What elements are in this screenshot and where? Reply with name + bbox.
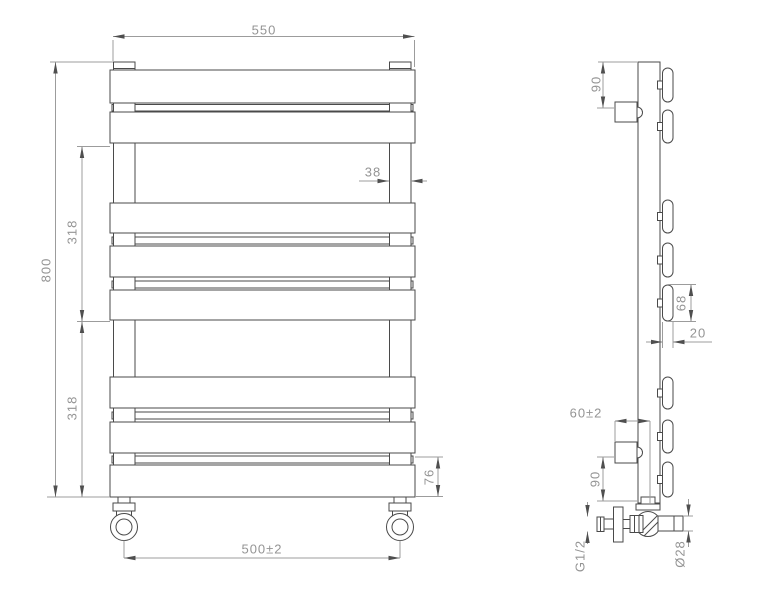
dim-overall-height: 800	[40, 258, 53, 283]
panel-edge	[663, 462, 674, 497]
dim-wall-to-pipe-centre: 60±2	[570, 407, 603, 420]
slat	[112, 237, 413, 244]
dim-valve-diameter: Ø28	[674, 540, 687, 568]
front-view	[47, 37, 443, 559]
tube-cap-right	[390, 62, 412, 69]
valve-front-right	[387, 497, 414, 541]
panel-edge	[663, 243, 674, 277]
side-view	[588, 62, 713, 547]
dim-overall-width: 550	[252, 24, 277, 37]
union-nut	[630, 516, 643, 533]
valve-front-left	[111, 497, 138, 541]
panel-edge	[663, 285, 674, 321]
panel-edge	[663, 377, 674, 409]
outlet-pipe	[658, 516, 683, 531]
dim-tube-width: 38	[365, 166, 381, 179]
slat	[112, 105, 413, 112]
escutcheon	[614, 507, 624, 542]
panel	[110, 112, 415, 143]
panel-edge	[663, 200, 674, 233]
valve-side	[597, 497, 683, 542]
panel	[110, 70, 415, 103]
panel	[110, 465, 415, 497]
panel	[110, 246, 415, 277]
panel	[110, 422, 415, 453]
dim-bottom-bracket-offset: 90	[589, 471, 602, 487]
panel-edge	[663, 68, 674, 102]
panel-edge	[663, 420, 674, 453]
panel	[110, 290, 415, 320]
panel-edge	[663, 110, 674, 143]
dim-connection-thread: G1/2	[574, 540, 587, 572]
panel	[110, 377, 415, 408]
slat	[112, 412, 413, 419]
tube-cap-left	[114, 62, 136, 69]
panel-edges	[663, 68, 674, 497]
slat	[112, 456, 413, 463]
dim-top-bracket-offset: 90	[590, 76, 603, 92]
drawing-canvas	[0, 0, 782, 600]
dim-panel-face-height: 68	[675, 295, 688, 311]
dim-lower-section: 318	[66, 396, 79, 421]
dim-valve-centres: 500±2	[241, 543, 282, 556]
slat	[112, 281, 413, 288]
panel	[110, 203, 415, 233]
dim-panel-thickness: 20	[690, 327, 706, 340]
slats	[112, 105, 413, 464]
dim-upper-section: 318	[66, 220, 79, 245]
side-tube	[638, 62, 660, 503]
technical-drawing: 550 800 318 318 38 76 500±2 90 68 20 60±…	[0, 0, 782, 600]
dim-bottom-section: 76	[423, 469, 436, 485]
